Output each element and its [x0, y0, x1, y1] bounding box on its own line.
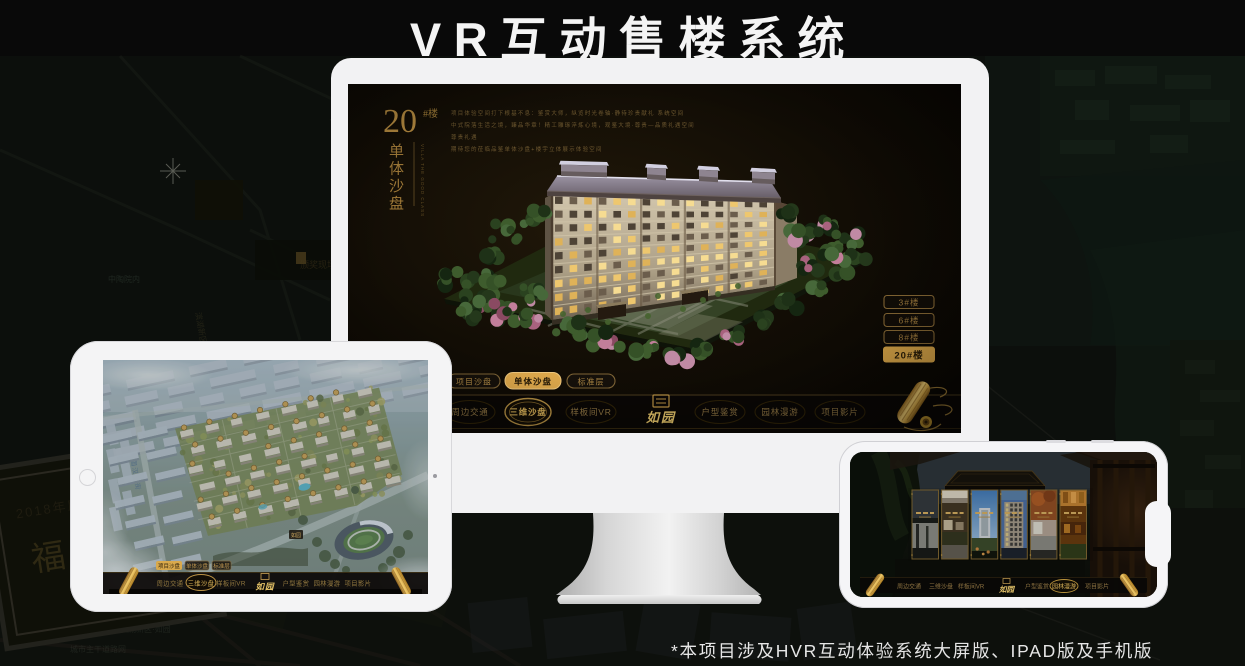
svg-text:周边交通: 周边交通 [157, 579, 184, 588]
svg-text:项目沙盘: 项目沙盘 [158, 562, 181, 570]
svg-text:标准层: 标准层 [213, 562, 230, 570]
svg-text:项目影片: 项目影片 [345, 579, 372, 588]
svg-text:样板间VR: 样板间VR [216, 579, 246, 588]
svg-text:样板间VR: 样板间VR [958, 583, 985, 591]
svg-text:园林漫游: 园林漫游 [314, 579, 341, 588]
svg-text:中陶院内: 中陶院内 [108, 274, 140, 284]
svg-text:户型鉴赏: 户型鉴赏 [283, 579, 310, 588]
svg-text:单体沙盘: 单体沙盘 [186, 562, 209, 570]
svg-text:周边交通: 周边交通 [897, 583, 921, 591]
svg-text:园林漫游: 园林漫游 [1052, 583, 1076, 591]
svg-text:户型鉴赏: 户型鉴赏 [1025, 583, 1049, 591]
svg-text:三维沙盘: 三维沙盘 [188, 579, 215, 588]
svg-text:如园: 如园 [291, 532, 301, 539]
svg-text:三维沙盘: 三维沙盘 [929, 583, 953, 591]
svg-text:城市主干道路网: 城市主干道路网 [70, 644, 126, 654]
svg-text:如园: 如园 [999, 585, 1015, 594]
svg-text:项目影片: 项目影片 [1085, 583, 1109, 591]
svg-text:如园: 如园 [255, 582, 275, 592]
